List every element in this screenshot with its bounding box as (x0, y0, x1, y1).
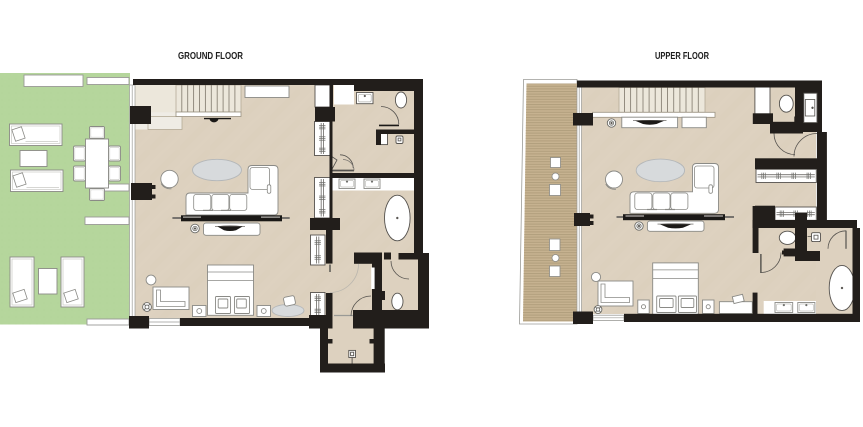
svg-text:UPPER FLOOR: UPPER FLOOR (655, 50, 709, 62)
svg-text:GROUND FLOOR: GROUND FLOOR (178, 50, 243, 62)
